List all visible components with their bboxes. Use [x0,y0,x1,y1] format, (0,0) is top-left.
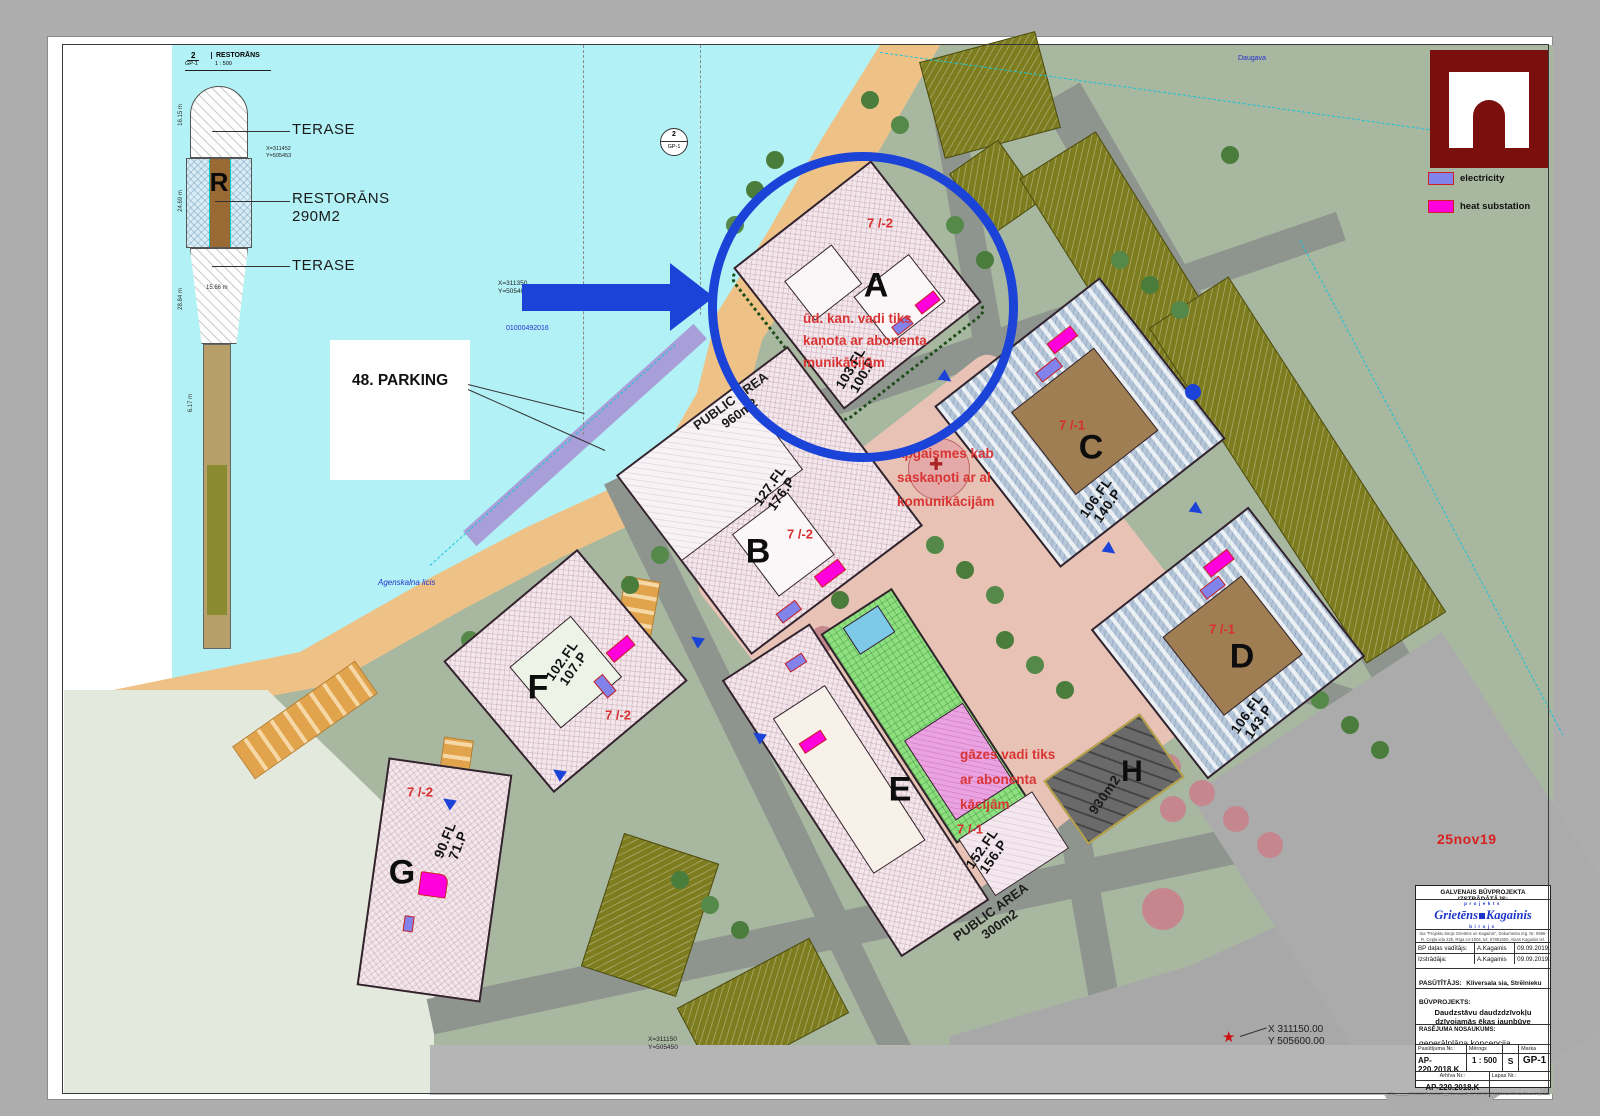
blue-dot-marker [1185,384,1201,400]
site-plan-screenshot: ✚ [0,0,1600,1116]
building-g-letter: G [389,854,415,893]
highlight-circle [708,152,1018,462]
detail-scale: 1 : 500 [215,61,232,67]
dimension-label: 15.66 m [206,285,228,291]
signature-date: 09.09.2019. [1515,943,1550,954]
project-label: BŪVPROJEKTS: [1419,999,1471,1006]
dimension-label: 16.15 m [178,104,184,126]
dimension-label: 28.84 m [178,288,184,310]
coordinate-label: X 311150.00Y 505600.00 [1268,1024,1325,1048]
titleblock-fineprint: Sia "Projektu birojs Grietēns un Kagaini… [1416,930,1550,943]
pier-strip [203,344,231,649]
signature-role: BP daļas vadītājs: [1416,943,1475,954]
survey-star-icon: ★ [1222,1028,1235,1046]
restaurant-letter: R [210,167,229,198]
logo-word-top: projekts [1416,901,1550,906]
legend-electricity-swatch [1428,172,1454,185]
legend-heat-label: heat substation [1460,201,1530,212]
file-path-microtext: GPA______PROJEKTI_040129__Kliversala2_GP… [1387,1091,1549,1096]
building-d-levels: 7 /-1 [1209,622,1235,637]
heat-substation-marker [1203,549,1235,578]
section-marker: 2 GP-1 [660,128,688,156]
signature-name: A.Kagainis [1475,954,1515,964]
logo-arch-opening [1473,100,1505,148]
legend-electricity-label: electricity [1460,173,1504,184]
dimension-label: 6.17 m [188,394,194,412]
cadastre-number: 01000492016 [506,325,549,333]
highlight-arrow-shaft [522,284,672,311]
detail-number: 2 [187,51,199,61]
drawing-value: generālplāna koncepcija [1419,1038,1511,1045]
building-e-letter: E [889,771,912,810]
building-e-levels: 7 /-1 [957,822,983,837]
building-c-levels: 7 /-1 [1059,418,1085,433]
parking-label: 48. PARKING [352,372,448,390]
label-background [330,340,470,480]
titleblock-signatures: BP daļas vadītājs: A.Kagainis 09.09.2019… [1416,943,1550,964]
stage-value: S [1503,1054,1518,1068]
building-b-letter: B [746,533,771,572]
logo-name: GrietēnsKagainis [1434,908,1532,922]
titleblock-client: PASŪTĪTĀJS: Kliversala sia, Strēlnieku 1… [1416,969,1550,989]
label-leader-line [212,266,290,267]
logo-word-bottom: birojs [1416,924,1550,929]
detail-coordinates: X=311452Y=505453 [266,146,291,160]
terrace-top [190,86,248,158]
heat-substation-marker [606,635,636,663]
titleblock-header: GALVENAIS BŪVPROJEKTA IZSTRĀDĀTĀJS: [1416,886,1550,900]
order-label: Pasūtījuma Nr.: [1416,1045,1466,1054]
date-stamp: 25nov19 [1437,831,1497,847]
titleblock-project: BŪVPROJEKTS: Daudzstāvu daudzdzīvokļu dz… [1416,989,1550,1025]
signature-role: Izstrādāja: [1416,954,1475,964]
titleblock-logo: projekts GrietēnsKagainis birojs [1416,900,1550,930]
heat-substation-marker [418,871,449,899]
section-marker-sheet: GP-1 [661,142,687,152]
building-b-levels: 7 /-2 [787,527,813,542]
electricity-marker [403,915,415,932]
building-h-letter: H [1121,755,1143,789]
project-line2: dzīvojamās ēkas jaunbūve [1419,1018,1547,1026]
legend-heat-swatch [1428,200,1454,213]
restaurant-block: R [186,158,252,248]
company-logo [1430,50,1548,168]
heat-substation-marker [1047,325,1079,354]
label-leader-line [215,201,290,202]
terrace-top-label: TERASE [292,121,355,138]
marka-value: GP-1 [1519,1054,1550,1067]
sheetnum-label: Lapas Nr.: [1490,1072,1550,1081]
utility-note-e: gāzes vadi tiksar abonentakācijām [960,742,1055,817]
titleblock-numbers: Pasūtījuma Nr.: AP-220.2018.K Mērogs 1 :… [1416,1045,1550,1072]
dimension-label: 24.69 m [178,190,184,212]
bottom-band [430,1045,1540,1095]
highlight-arrow-icon [670,263,714,331]
archive-label: Arhīva Nr.: [1416,1072,1489,1081]
restaurant-label: RESTORĀNS [292,190,390,207]
detail-title: RESTORĀNS [211,52,260,59]
detail-sheet-ref: GP-1 [185,61,198,67]
label-leader-line [212,131,290,132]
water-label: Agenskalna licis [378,578,435,587]
restaurant-area-label: 290M2 [292,208,340,225]
terrace-bottom-label: TERASE [292,257,355,274]
marka-label: Marka [1519,1045,1550,1054]
logo-square-icon [1479,913,1485,919]
section-marker-number: 2 [661,129,687,142]
signature-date: 09.09.2019. [1515,954,1550,964]
section-line [583,45,584,435]
order-value: AP-220.2018.K [1416,1054,1466,1072]
building-d-letter: D [1230,638,1255,677]
building-g-levels: 7 /-2 [407,785,433,800]
title-block: GALVENAIS BŪVPROJEKTA IZSTRĀDĀTĀJS: proj… [1415,885,1551,1088]
building-f-levels: 7 /-2 [605,708,631,723]
coordinate-label: X=311150Y=505450 [648,1036,678,1052]
building-c-letter: C [1079,429,1104,468]
drawing-label: RASĒJUMA NOSAUKUMS: [1419,1027,1547,1033]
titleblock-drawing: RASĒJUMA NOSAUKUMS: generālplāna koncepc… [1416,1025,1550,1045]
river-label: Daugava [1238,55,1266,62]
client-label: PASŪTĪTĀJS: [1419,980,1462,987]
logo-arch-shape [1449,72,1529,148]
pier-strip-green [207,465,227,615]
scale-label: Mērogs [1467,1045,1502,1054]
detail-header: 2 GP-1 RESTORĀNS 1 : 500 [185,50,271,71]
scale-value: 1 : 500 [1467,1054,1502,1067]
signature-name: A.Kagainis [1475,943,1515,954]
